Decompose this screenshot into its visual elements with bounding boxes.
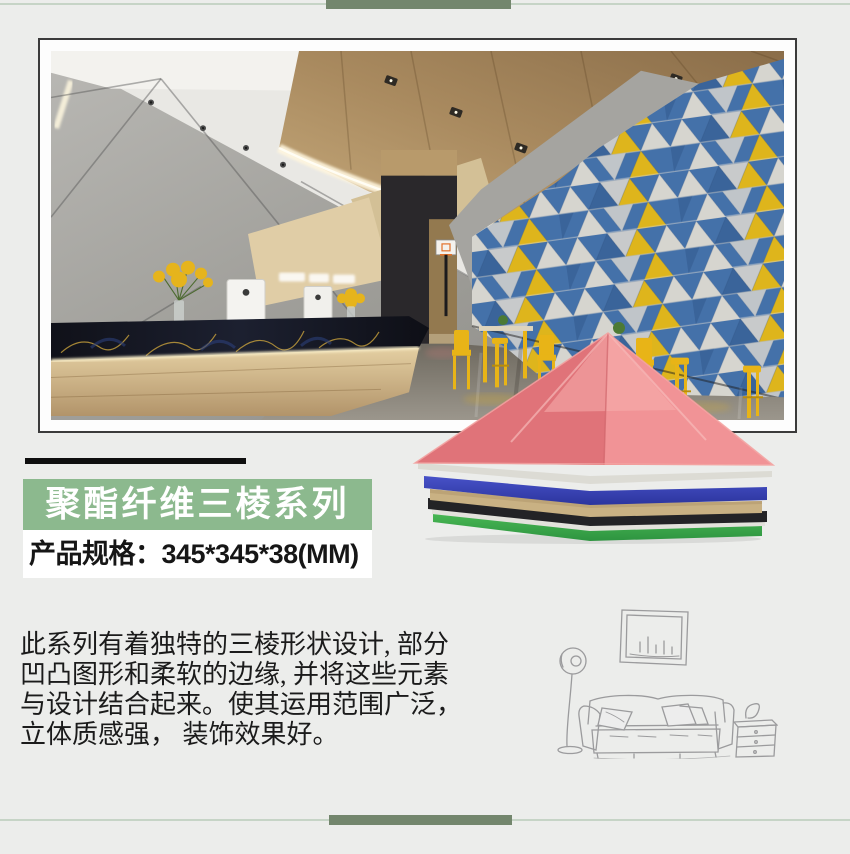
monitor (304, 286, 332, 323)
top-accent-bar (326, 0, 511, 9)
series-title-band: 聚酯纤维三棱系列 (23, 479, 372, 530)
monitor (227, 280, 265, 324)
red-pyramid-panel (408, 330, 778, 470)
bottom-accent-bar (329, 815, 512, 825)
corridor (381, 150, 457, 344)
product-spec-band: 产品规格：345*345*38(MM) (23, 530, 372, 578)
product-detail-page: 聚酯纤维三棱系列 产品规格：345*345*38(MM) 此系列有着独特的三棱形… (0, 0, 850, 854)
product-stack (408, 330, 778, 545)
sofa-sketch (579, 695, 734, 759)
picture-frame-sketch (620, 610, 688, 665)
title-underline-rule (25, 458, 246, 464)
side-table-sketch (734, 704, 777, 757)
living-room-sketch (550, 604, 778, 759)
product-description: 此系列有着独特的三棱形状设计, 部分 凹凸图形和柔软的边缘, 并将这些元素 与设… (20, 630, 490, 750)
